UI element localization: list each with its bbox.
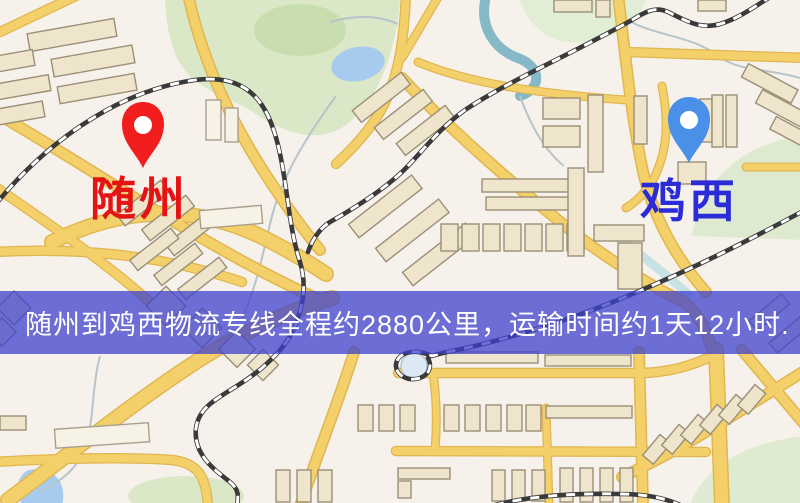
route-info-text: 随州到鸡西物流专线全程约2880公里，运输时间约1天12小时. <box>25 303 790 342</box>
destination-label: 鸡西 <box>640 179 738 225</box>
route-info-banner: 随州到鸡西物流专线全程约2880公里，运输时间约1天12小时. <box>0 291 800 354</box>
origin-pin[interactable] <box>120 100 166 170</box>
map-background <box>0 0 800 503</box>
map-canvas: 随州到鸡西物流专线全程约2880公里，运输时间约1天12小时. 随州 鸡西 <box>0 0 800 503</box>
map-pin-icon <box>666 95 712 165</box>
destination-pin[interactable] <box>666 95 712 165</box>
origin-label: 随州 <box>90 177 188 223</box>
map-pin-icon <box>120 100 166 170</box>
